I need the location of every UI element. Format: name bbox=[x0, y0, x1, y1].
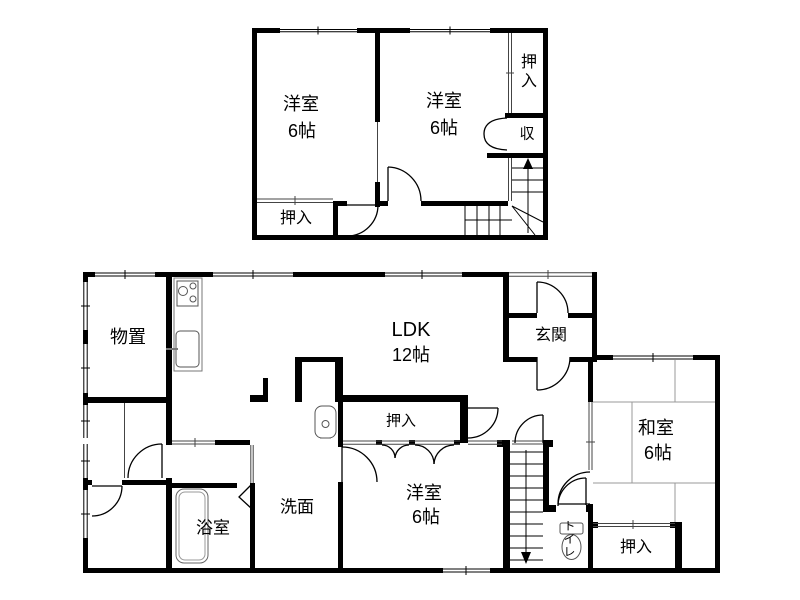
japanese-room-size: 6帖 bbox=[644, 444, 672, 462]
closet-label-1f-center: 押入 bbox=[386, 414, 416, 429]
stairs-1f bbox=[510, 450, 543, 564]
doors-2f bbox=[347, 118, 507, 236]
thin-partitions-2f bbox=[257, 33, 514, 205]
western-room-size: 6帖 bbox=[412, 508, 440, 526]
window-south-western-room bbox=[443, 566, 490, 575]
japanese-room-label: 和室 bbox=[638, 419, 674, 437]
entrance-label: 玄関 bbox=[535, 328, 567, 344]
window-2f-east bbox=[410, 27, 490, 35]
window-top-storage bbox=[95, 270, 155, 279]
floorplan-page: 洋室 6帖 洋室 6帖 押入 収 押入 物置 LDK 12帖 玄関 和室 6帖 … bbox=[0, 0, 800, 600]
bathroom-label: 浴室 bbox=[196, 520, 230, 537]
window-north-washitsu bbox=[613, 353, 693, 362]
windows-west-wall bbox=[81, 282, 90, 538]
washbasin-icon bbox=[315, 406, 336, 438]
room-size-2f-west: 6帖 bbox=[288, 122, 316, 140]
window-top-kitchen bbox=[213, 270, 293, 279]
storage-door-lower bbox=[484, 134, 507, 150]
room-size-2f-east: 6帖 bbox=[430, 119, 458, 137]
stove-icon bbox=[177, 281, 198, 306]
floorplan-drawing bbox=[0, 0, 800, 600]
toilet-label: トイレ bbox=[563, 520, 575, 559]
stairs-down-arrow bbox=[521, 450, 531, 564]
closet-label-2f-sw: 押入 bbox=[280, 211, 312, 227]
room-label-2f-west: 洋室 bbox=[283, 95, 319, 113]
window-top-ldk bbox=[385, 270, 462, 279]
closet-label-1f-se: 押入 bbox=[620, 540, 652, 556]
room-label-2f-east: 洋室 bbox=[426, 92, 462, 110]
tatami-lines bbox=[593, 360, 715, 522]
storage-label-2f: 収 bbox=[519, 127, 534, 142]
storage-door-upper bbox=[484, 118, 507, 134]
storage-room-label: 物置 bbox=[110, 328, 146, 346]
ldk-label: LDK bbox=[392, 320, 431, 340]
washroom-label: 洗面 bbox=[280, 499, 314, 516]
window-2f-west bbox=[280, 27, 357, 35]
closet-label-2f-ne: 押入 bbox=[518, 53, 534, 91]
ldk-size: 12帖 bbox=[392, 346, 430, 364]
stairs-2f bbox=[465, 158, 543, 235]
western-room-label: 洋室 bbox=[406, 484, 442, 502]
